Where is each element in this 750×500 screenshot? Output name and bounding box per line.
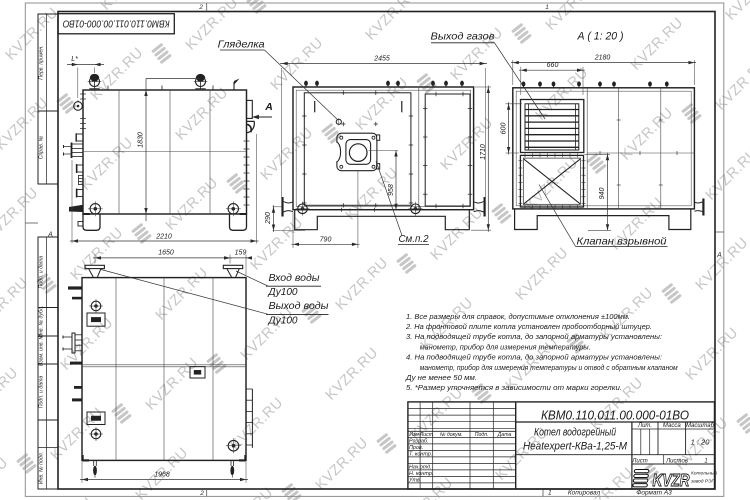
svg-text:1830: 1830 — [138, 132, 145, 148]
svg-text:Лист: Лист — [419, 432, 434, 438]
svg-text:1 : 20: 1 : 20 — [691, 438, 711, 447]
svg-text:Копировал: Копировал — [568, 490, 601, 497]
svg-text:Ду100: Ду100 — [268, 314, 298, 326]
svg-text:Формат А3: Формат А3 — [636, 490, 672, 497]
svg-text:Взам. инв. №: Взам. инв. № — [39, 334, 45, 366]
svg-text:Лист: Лист — [631, 458, 647, 464]
svg-text:Нач.отд.: Нач.отд. — [409, 465, 432, 471]
svg-text:Н. контр.: Н. контр. — [409, 471, 433, 477]
svg-text:А: А — [716, 252, 722, 259]
svg-text:Изм: Изм — [409, 432, 419, 438]
svg-text:1710: 1710 — [480, 144, 487, 160]
svg-text:Ду100: Ду100 — [268, 286, 298, 298]
svg-text:1. Все размеры для справок, до: 1. Все размеры для справок, допустимые о… — [406, 312, 630, 321]
svg-text:А ( 1: 20 ): А ( 1: 20 ) — [577, 31, 624, 43]
svg-text:Выход воды: Выход воды — [269, 300, 329, 312]
svg-text:5. *Размер уточняется в зависи: 5. *Размер уточняется в зависимости от м… — [406, 383, 622, 392]
svg-text:Подп. и дата: Подп. и дата — [39, 256, 45, 289]
svg-text:КВМ0.110.011.00.000-01ВО: КВМ0.110.011.00.000-01ВО — [63, 17, 170, 28]
svg-text:КВМ0.110.011.00.000-01ВО: КВМ0.110.011.00.000-01ВО — [541, 409, 689, 423]
svg-text:Ду не менее 50 мм.: Ду не менее 50 мм. — [405, 373, 477, 382]
svg-text:Инв. № подл.: Инв. № подл. — [39, 452, 45, 484]
svg-text:940: 940 — [599, 188, 606, 200]
svg-text:Подп. и дата: Подп. и дата — [39, 376, 45, 409]
svg-text:А: А — [264, 101, 273, 113]
svg-text:Гляделка: Гляделка — [218, 39, 265, 51]
svg-text:2. На фронтовой плите котла ус: 2. На фронтовой плите котла установлен п… — [405, 322, 652, 331]
svg-text:958: 958 — [388, 184, 395, 196]
svg-text:Котел водогрейный: Котел водогрейный — [534, 427, 616, 439]
svg-text:Перв. примен.: Перв. примен. — [39, 45, 45, 79]
svg-text:Подп.: Подп. — [475, 432, 489, 438]
svg-text:660: 660 — [547, 62, 559, 69]
svg-text:Справ. №: Справ. № — [39, 135, 45, 159]
svg-text:2455: 2455 — [373, 55, 390, 62]
svg-text:Пров.: Пров. — [409, 445, 423, 451]
svg-text:манометр, прибор для измерения: манометр, прибор для измерения температу… — [420, 342, 591, 351]
svg-text:Масштаб: Масштаб — [686, 423, 715, 429]
svg-text:KVZR: KVZR — [653, 470, 690, 490]
svg-text:2210: 2210 — [155, 233, 172, 240]
svg-text:159: 159 — [235, 249, 247, 256]
svg-text:Инв. № дубл.: Инв. № дубл. — [39, 306, 45, 338]
svg-text:завод РЭП: завод РЭП — [690, 479, 715, 485]
svg-text:1: 1 — [545, 4, 549, 11]
svg-text:См.п.2: См.п.2 — [399, 233, 429, 245]
svg-text:2: 2 — [199, 490, 204, 497]
svg-text:Вход воды: Вход воды — [269, 272, 320, 284]
svg-text:Листов: Листов — [665, 458, 688, 464]
svg-text:Т. контр.: Т. контр. — [409, 452, 432, 458]
svg-text:L*: L* — [71, 56, 78, 63]
svg-text:Утв.: Утв. — [408, 478, 421, 484]
svg-text:600: 600 — [500, 123, 507, 135]
svg-text:1: 1 — [548, 490, 552, 497]
svg-text:290: 290 — [265, 212, 272, 225]
svg-text:1: 1 — [704, 458, 707, 464]
svg-text:3. На подводящей трубе котла,: 3. На подводящей трубе котла, до запорно… — [406, 332, 662, 341]
svg-text:Котельный: Котельный — [691, 470, 717, 477]
svg-text:Разраб.: Разраб. — [409, 439, 429, 445]
svg-text:4. На подводящей трубе котла,: 4. На подводящей трубе котла, до запорно… — [406, 353, 662, 362]
svg-text:Лит.: Лит. — [637, 423, 652, 429]
svg-text:2180: 2180 — [594, 54, 611, 61]
svg-text:Выход газов: Выход газов — [431, 31, 496, 43]
svg-text:790: 790 — [320, 236, 332, 243]
svg-text:манометр, прибор для измерения: манометр, прибор для измерения температу… — [420, 363, 678, 372]
svg-text:Масса: Масса — [663, 423, 681, 429]
svg-text:Дата: Дата — [497, 432, 512, 438]
svg-text:2: 2 — [198, 4, 203, 11]
svg-text:1968: 1968 — [154, 472, 170, 479]
svg-text:Клапан взрывной: Клапан взрывной — [577, 236, 667, 248]
svg-text:№ докум.: № докум. — [440, 432, 463, 438]
svg-text:1650: 1650 — [158, 249, 174, 256]
svg-text:Heatexpert-КВа-1,25-М: Heatexpert-КВа-1,25-М — [523, 441, 628, 453]
